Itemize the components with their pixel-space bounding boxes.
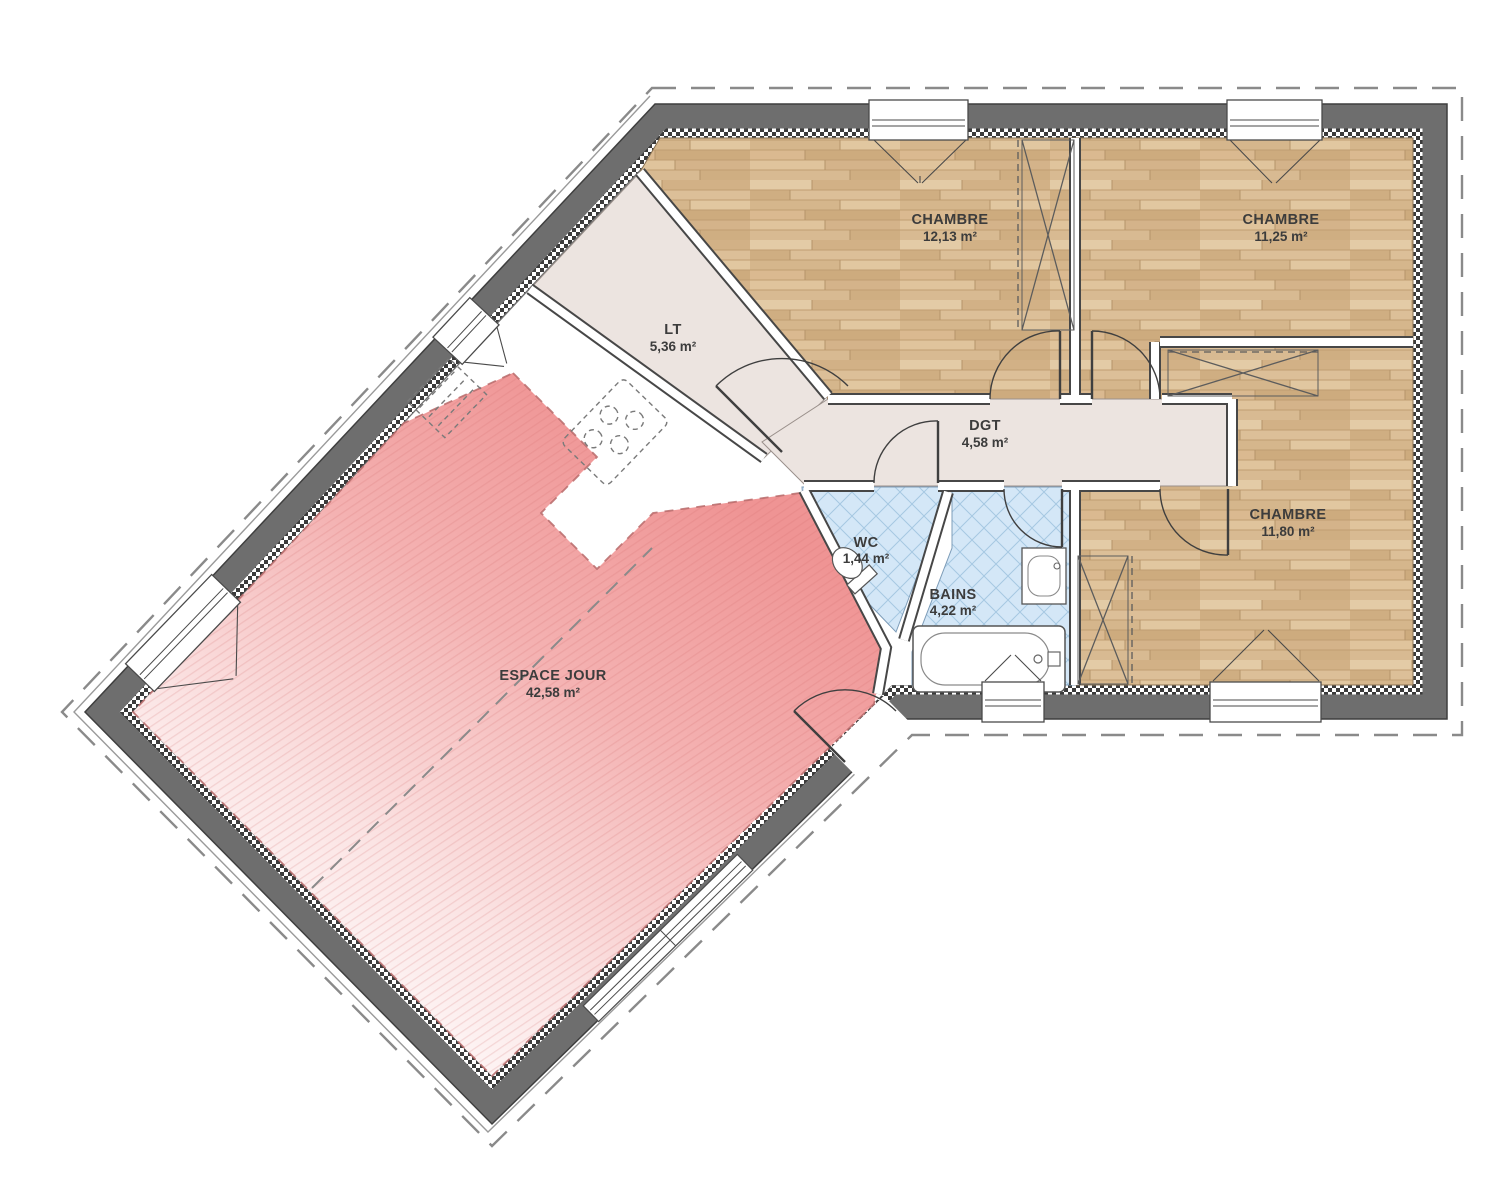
floor-plan-drawing: CHAMBRE 12,13 m² CHAMBRE 11,25 m² CHAMBR…	[0, 0, 1500, 1200]
room-label-chambre-2-area: 11,25 m²	[1254, 229, 1308, 244]
room-label-chambre-1-area: 12,13 m²	[923, 229, 978, 244]
room-label-bains-name: BAINS	[929, 587, 976, 603]
room-label-wc-name: WC	[854, 535, 879, 551]
room-label-chambre-3-name: CHAMBRE	[1250, 507, 1327, 523]
room-label-chambre-1-name: CHAMBRE	[912, 212, 989, 228]
room-label-bains-area: 4,22 m²	[930, 603, 977, 618]
room-label-espace-jour-name: ESPACE JOUR	[499, 668, 606, 684]
room-label-lt-area: 5,36 m²	[650, 339, 697, 354]
room-label-chambre-2-name: CHAMBRE	[1243, 212, 1320, 228]
room-label-espace-jour-area: 42,58 m²	[526, 685, 581, 700]
room-label-lt-name: LT	[664, 322, 681, 338]
bathroom-sink	[1022, 548, 1066, 604]
room-label-dgt-name: DGT	[969, 418, 1001, 434]
room-label-dgt-area: 4,58 m²	[962, 435, 1009, 450]
room-label-wc-area: 1,44 m²	[843, 551, 890, 566]
floor-plan: CHAMBRE 12,13 m² CHAMBRE 11,25 m² CHAMBR…	[0, 0, 1500, 1200]
room-label-chambre-3-area: 11,80 m²	[1261, 524, 1315, 539]
